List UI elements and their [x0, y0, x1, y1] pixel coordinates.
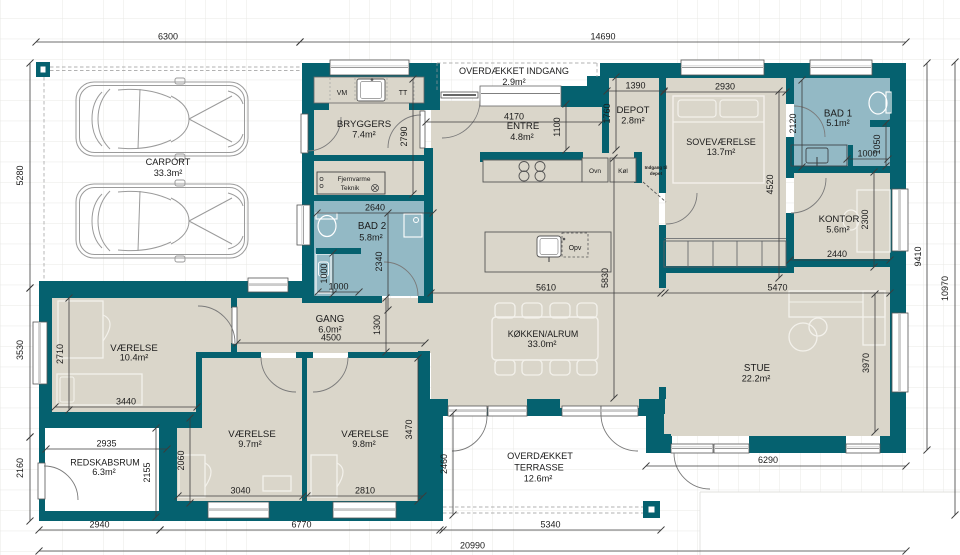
svg-text:3470: 3470	[404, 419, 414, 439]
svg-text:Opv: Opv	[569, 245, 582, 252]
svg-text:OVERDÆKKET: OVERDÆKKET	[507, 451, 573, 461]
svg-text:10970: 10970	[940, 276, 950, 301]
svg-text:DEPOT: DEPOT	[616, 105, 649, 116]
svg-text:1000: 1000	[319, 263, 329, 283]
svg-text:SOVEVÆRELSE: SOVEVÆRELSE	[686, 137, 756, 147]
svg-text:5.8m²: 5.8m²	[359, 233, 383, 243]
svg-text:33.3m²: 33.3m²	[154, 168, 183, 178]
svg-text:5340: 5340	[540, 520, 560, 530]
svg-text:2710: 2710	[55, 344, 65, 364]
svg-text:2155: 2155	[142, 462, 152, 482]
svg-text:4500: 4500	[321, 333, 341, 343]
svg-text:1000: 1000	[328, 282, 348, 292]
svg-text:2440: 2440	[827, 249, 847, 259]
svg-text:2300: 2300	[860, 209, 870, 229]
svg-text:4520: 4520	[765, 174, 775, 194]
svg-text:REDSKABSRUM: REDSKABSRUM	[70, 458, 140, 468]
svg-text:2.8m²: 2.8m²	[621, 116, 645, 126]
svg-text:14690: 14690	[590, 32, 615, 42]
svg-text:2810: 2810	[355, 486, 375, 496]
svg-text:2.9m²: 2.9m²	[502, 77, 525, 87]
svg-text:Teknik: Teknik	[341, 185, 360, 192]
svg-text:9410: 9410	[913, 246, 923, 266]
svg-text:Fjernvarme: Fjernvarme	[338, 176, 371, 183]
svg-text:TT: TT	[399, 90, 408, 97]
svg-text:2930: 2930	[715, 82, 735, 92]
svg-text:2060: 2060	[176, 450, 186, 470]
svg-text:BAD 2: BAD 2	[358, 221, 386, 232]
svg-text:6290: 6290	[758, 455, 778, 465]
svg-text:1050: 1050	[872, 134, 882, 154]
svg-text:6.3m²: 6.3m²	[92, 467, 116, 477]
svg-text:6300: 6300	[158, 32, 178, 42]
svg-text:KONTOR: KONTOR	[819, 214, 860, 225]
svg-text:4170: 4170	[504, 112, 524, 122]
svg-text:OVERDÆKKET INDGANG: OVERDÆKKET INDGANG	[459, 66, 569, 76]
svg-text:Indgang til: Indgang til	[645, 165, 668, 170]
svg-text:Køl: Køl	[618, 168, 628, 175]
svg-text:1100: 1100	[552, 117, 562, 136]
svg-text:5470: 5470	[767, 283, 787, 293]
svg-text:KØKKEN/ALRUM: KØKKEN/ALRUM	[508, 329, 579, 339]
svg-text:2935: 2935	[96, 439, 116, 449]
svg-text:depot: depot	[650, 171, 663, 176]
svg-text:13.7m²: 13.7m²	[707, 147, 736, 157]
svg-text:GANG: GANG	[316, 314, 345, 325]
svg-text:6770: 6770	[291, 520, 311, 530]
svg-text:10.4m²: 10.4m²	[120, 353, 149, 363]
svg-text:TERRASSE: TERRASSE	[514, 463, 564, 473]
svg-text:CARPORT: CARPORT	[146, 157, 191, 167]
svg-text:3440: 3440	[116, 397, 136, 407]
svg-text:22.2m²: 22.2m²	[742, 374, 771, 384]
svg-text:Ovn: Ovn	[589, 168, 601, 175]
svg-text:VM: VM	[337, 90, 348, 97]
svg-text:9.7m²: 9.7m²	[238, 439, 262, 449]
svg-text:1760: 1760	[602, 103, 612, 123]
svg-text:3970: 3970	[861, 353, 871, 373]
svg-text:9.8m²: 9.8m²	[352, 439, 376, 449]
svg-text:4.8m²: 4.8m²	[510, 132, 534, 142]
svg-text:1390: 1390	[625, 81, 645, 91]
svg-text:12.6m²: 12.6m²	[524, 474, 553, 484]
svg-text:5.6m²: 5.6m²	[826, 225, 850, 235]
svg-text:1300: 1300	[372, 315, 382, 335]
svg-text:2460: 2460	[439, 454, 449, 474]
svg-text:BRYGGERS: BRYGGERS	[337, 119, 391, 130]
svg-text:2340: 2340	[374, 251, 384, 271]
svg-text:2120: 2120	[788, 113, 798, 133]
svg-text:3530: 3530	[15, 340, 25, 360]
svg-text:5610: 5610	[536, 283, 556, 293]
svg-text:ENTRE: ENTRE	[507, 121, 540, 132]
svg-text:2940: 2940	[89, 520, 109, 530]
svg-text:5.1m²: 5.1m²	[826, 118, 850, 128]
svg-text:5280: 5280	[15, 165, 25, 185]
svg-text:STUE: STUE	[744, 363, 771, 374]
svg-text:2160: 2160	[15, 458, 25, 478]
svg-text:5830: 5830	[600, 268, 610, 288]
svg-text:3040: 3040	[230, 486, 250, 496]
svg-text:2790: 2790	[399, 126, 409, 146]
svg-text:33.0m²: 33.0m²	[528, 339, 557, 349]
svg-text:7.4m²: 7.4m²	[352, 130, 376, 140]
svg-text:20990: 20990	[460, 541, 485, 551]
svg-text:2640: 2640	[365, 203, 385, 213]
